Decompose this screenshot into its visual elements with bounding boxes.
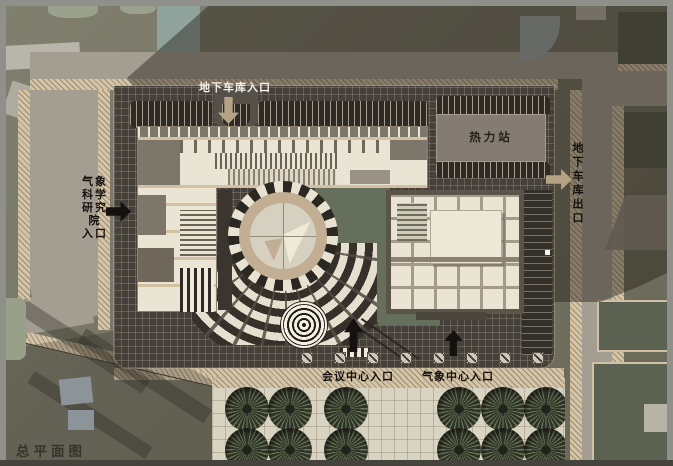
stairs [180, 268, 214, 312]
roof-block [138, 248, 174, 282]
planter [434, 353, 444, 363]
roof-mullions [138, 140, 427, 153]
spiral-pavement [281, 302, 327, 348]
courtyard-floor [250, 203, 316, 269]
context-building [68, 410, 94, 430]
roof-louvers [397, 203, 427, 241]
tree [268, 387, 312, 431]
conference-entrance-label: 会议中心入口 [320, 371, 396, 384]
sidewalk [18, 90, 30, 302]
light-marker [545, 250, 550, 255]
parking-strip [258, 101, 428, 128]
planter [368, 353, 378, 363]
frame-bottom [0, 460, 673, 466]
planter [302, 353, 312, 363]
roof-band [138, 127, 427, 137]
institute-entrance-label: 气象 科学 研究 院 入口 [82, 176, 108, 241]
tree [481, 387, 525, 431]
planter [500, 353, 510, 363]
tree [324, 387, 368, 431]
planter [467, 353, 477, 363]
roof-louvers [215, 153, 340, 169]
parking-strip [436, 96, 550, 116]
roof-block [350, 170, 390, 184]
plan-title: 总平面图 [16, 440, 86, 460]
meteorology-entrance-label: 气象中心入口 [420, 371, 496, 384]
planter [401, 353, 411, 363]
tree [524, 387, 565, 431]
site-plan: 热力站 地下车库入口 地下车库出口 气象 科学 研究 院 入口 会议中心入口 [0, 0, 673, 466]
tree [437, 387, 481, 431]
green-patch [597, 300, 673, 352]
parking-strip [436, 162, 550, 178]
roof-band [391, 257, 519, 262]
planter [335, 353, 345, 363]
parking-strip [522, 190, 552, 355]
context-building [59, 376, 94, 405]
roof-block [138, 140, 180, 187]
frame-top [0, 0, 673, 6]
garage-exit-label: 地下车库出口 [570, 142, 583, 238]
tree [225, 387, 269, 431]
frame-right [667, 0, 673, 466]
heating-station-building: 热力站 [436, 114, 546, 162]
circular-courtyard [228, 181, 338, 291]
frame-left [0, 0, 6, 466]
garage-entrance-label: 地下车库入口 [197, 82, 273, 95]
roof-louvers [180, 210, 216, 256]
planter [533, 353, 543, 363]
roof-penthouse [430, 210, 502, 264]
heating-station-label: 热力站 [469, 132, 513, 145]
floor-line [283, 203, 284, 269]
trees-plaza [212, 378, 565, 466]
entrance-canopy [416, 312, 486, 320]
roof-block [138, 195, 166, 235]
roof-block [390, 140, 427, 160]
meteorology-center-building [386, 190, 524, 314]
parking-strip [130, 101, 212, 128]
